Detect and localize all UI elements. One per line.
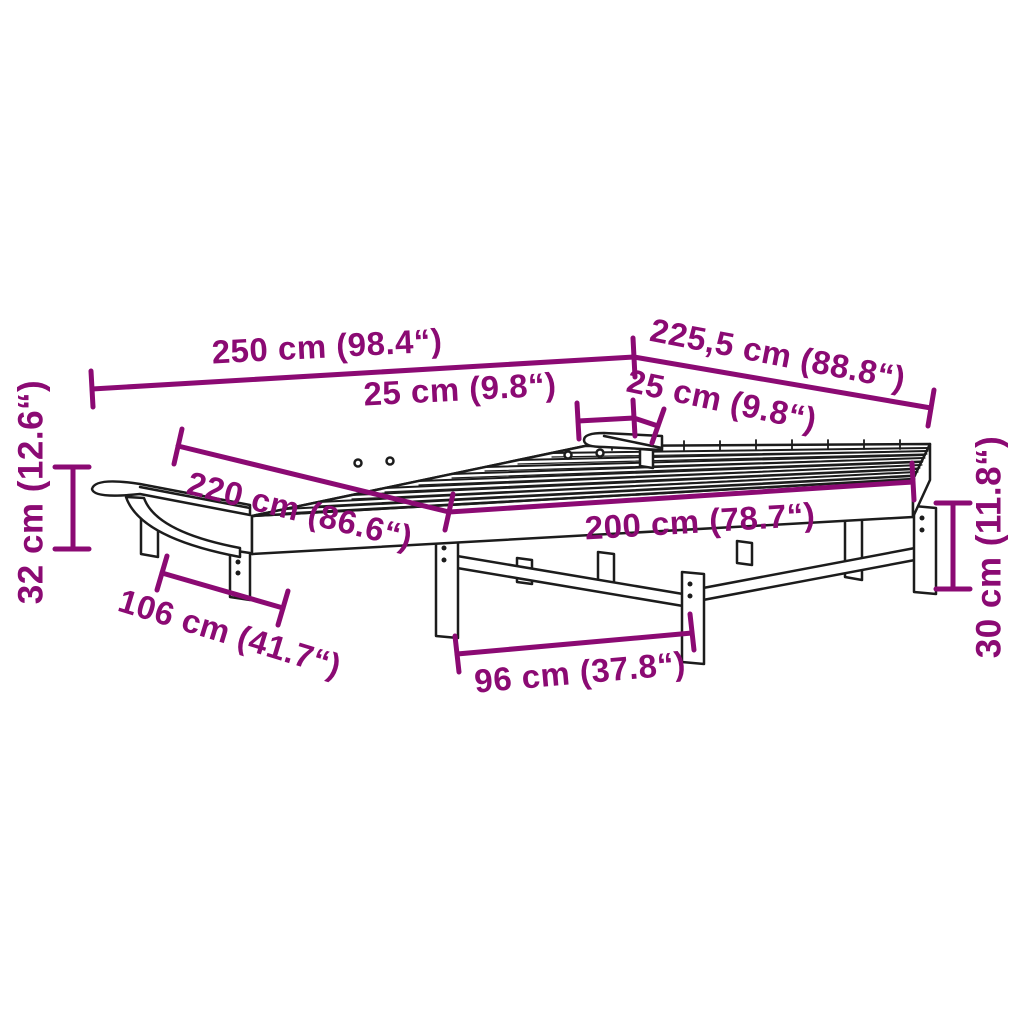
dim-30-line	[936, 503, 970, 589]
dim-32-label: 32 cm (12.6“)	[14, 380, 49, 604]
dim-32-line	[55, 467, 89, 549]
product-dimension-diagram: 250 cm (98.4“) 225,5 cm (88.8“) 25 cm (9…	[0, 0, 1024, 1024]
bed-center-stub-3	[737, 541, 752, 565]
dim-30-label: 30 cm (11.8“)	[972, 436, 1007, 658]
bed-brace-right	[703, 548, 915, 600]
bed-knob	[597, 450, 604, 457]
bed-knob	[565, 452, 572, 459]
bed-brace-left	[457, 556, 683, 606]
back-tray-bracket	[640, 449, 653, 468]
bed-front-left-leg	[436, 538, 458, 638]
bed-knob	[355, 460, 362, 467]
bed-front-right-leg	[914, 506, 936, 594]
bed-knob	[387, 458, 394, 465]
diagram-canvas	[0, 0, 1024, 1024]
